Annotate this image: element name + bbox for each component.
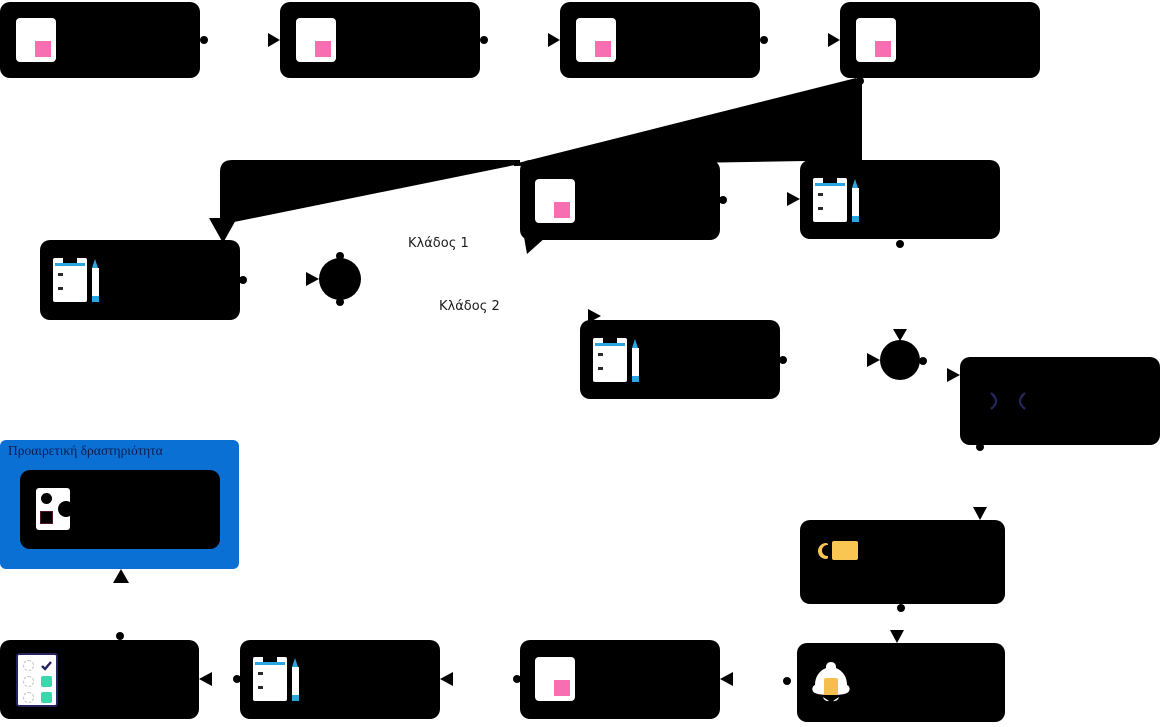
connection-dot — [783, 677, 791, 685]
arrowhead-right — [947, 368, 960, 382]
connection-dot — [760, 36, 768, 44]
checklist-icon — [16, 653, 58, 707]
arrowhead-right — [828, 33, 840, 47]
branch2-label: Κλάδος 2 — [439, 299, 500, 314]
gateway-2[interactable] — [880, 340, 920, 380]
note-icon — [296, 18, 336, 62]
form-node-right[interactable] — [800, 160, 1000, 239]
task-node-4[interactable] — [840, 2, 1040, 78]
note-node-mid[interactable] — [520, 160, 720, 240]
note-icon — [576, 18, 616, 62]
arrowhead-down — [893, 329, 907, 341]
arrowhead-right — [787, 192, 800, 206]
gateway-1[interactable] — [319, 258, 361, 300]
arrowhead-right — [867, 353, 880, 367]
arrowhead-left — [199, 672, 212, 686]
connection-dot — [896, 240, 904, 248]
group-label: Προαιρετική δραστηριότητα — [8, 443, 163, 459]
tag-icon — [818, 540, 860, 566]
note-icon — [16, 18, 56, 62]
arrowhead-down — [890, 630, 904, 643]
arrowhead-right — [268, 33, 280, 47]
connection-dot — [897, 604, 905, 612]
workflow-canvas: Κλάδος 1 Κλάδος 2 Προαιρετική δραστηριότ… — [0, 0, 1162, 727]
note-icon — [535, 179, 575, 223]
connection-dot — [779, 356, 787, 364]
connection-dot — [200, 36, 208, 44]
task-node-1[interactable] — [0, 2, 200, 78]
note-node-bottom[interactable] — [520, 640, 720, 719]
arrowhead-down — [973, 507, 987, 520]
connection-dot — [116, 632, 124, 640]
bell-node[interactable] — [797, 643, 1005, 722]
code-icon — [985, 391, 1031, 411]
arrowhead-left — [720, 672, 733, 686]
form-node-bottom[interactable] — [240, 640, 440, 719]
check-mark — [41, 661, 53, 671]
connection-dot — [239, 276, 247, 284]
clipboard-pen-icon — [813, 176, 861, 224]
connection-dot — [919, 357, 927, 365]
connection-dot — [719, 196, 727, 204]
connection-dot — [336, 252, 344, 260]
thick-edge-diagonal[interactable] — [514, 78, 862, 166]
clipboard-pen-icon — [53, 256, 101, 304]
arrowhead-left — [440, 672, 453, 686]
arrowhead-right — [306, 272, 319, 286]
connection-dot — [480, 36, 488, 44]
form-node-left[interactable] — [40, 240, 240, 320]
thick-edge-band[interactable] — [220, 160, 520, 222]
arrowhead-right — [548, 33, 560, 47]
bell-icon — [807, 656, 855, 710]
connection-dot — [856, 77, 864, 85]
arrowhead-up — [113, 569, 129, 583]
note-icon — [535, 657, 575, 701]
media-node[interactable] — [20, 470, 220, 549]
shapes-icon — [36, 488, 70, 530]
tag-node[interactable] — [800, 520, 1005, 604]
note-icon — [856, 18, 896, 62]
optional-activity-group[interactable]: Προαιρετική δραστηριότητα — [0, 440, 239, 569]
clipboard-pen-icon — [593, 336, 641, 384]
task-node-3[interactable] — [560, 2, 760, 78]
code-node[interactable] — [960, 357, 1160, 445]
connection-dot — [336, 298, 344, 306]
task-node-2[interactable] — [280, 2, 480, 78]
clipboard-pen-icon — [253, 655, 301, 703]
checklist-node[interactable] — [0, 640, 199, 719]
branch1-label: Κλάδος 1 — [408, 236, 469, 251]
form-node-branch2[interactable] — [580, 320, 780, 399]
